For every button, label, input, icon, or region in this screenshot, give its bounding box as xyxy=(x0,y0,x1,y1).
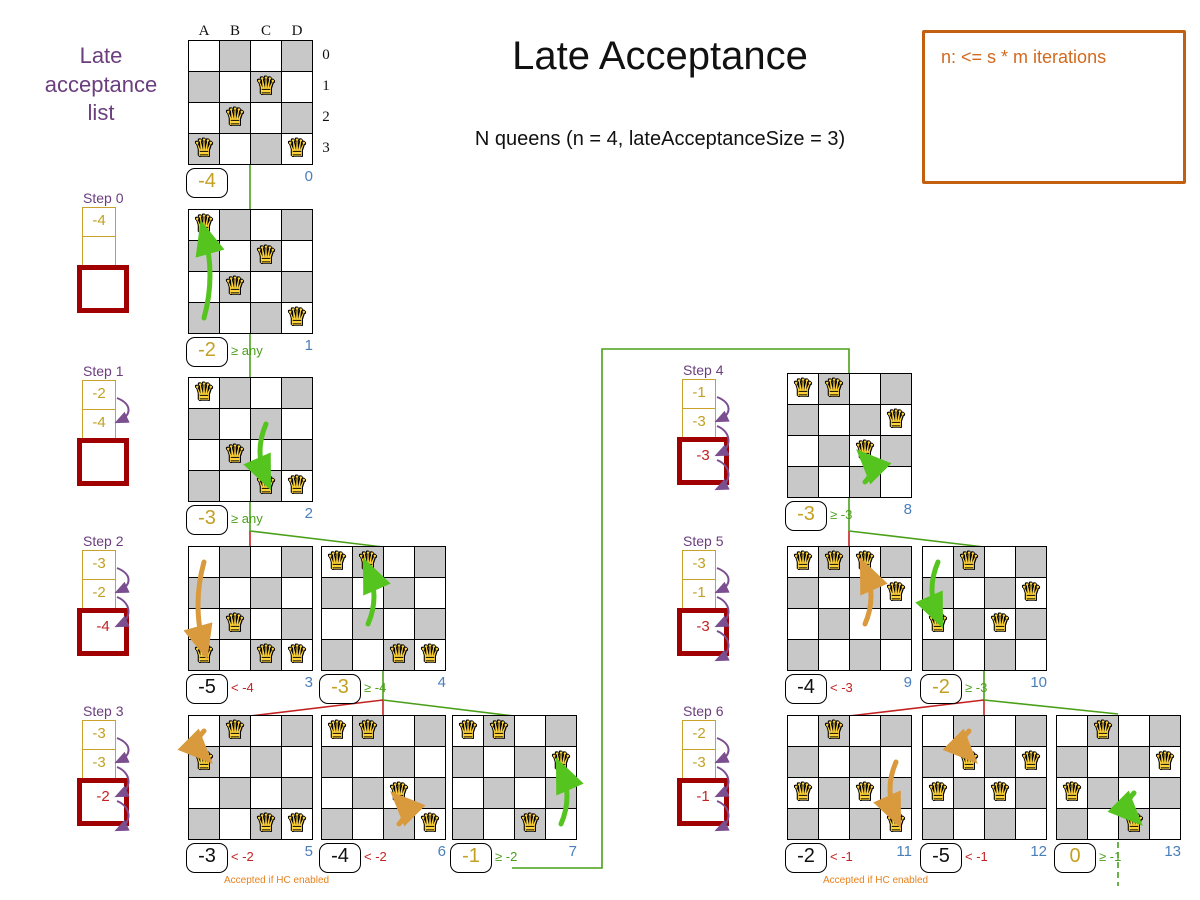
board-cell xyxy=(251,272,282,303)
board-cell xyxy=(220,41,251,72)
queen-icon: ♛ xyxy=(1016,579,1046,607)
board-10: ♛♛♛♛ xyxy=(922,546,1047,671)
board-cell xyxy=(189,809,220,840)
board-cell: ♛ xyxy=(819,374,850,405)
queen-icon: ♛ xyxy=(251,242,281,270)
board-cell xyxy=(282,778,313,809)
board-cell xyxy=(220,378,251,409)
queen-icon: ♛ xyxy=(453,717,483,745)
score-badge: -4 xyxy=(785,674,827,704)
board-index: 2 xyxy=(279,505,313,522)
board-cell xyxy=(923,747,954,778)
board-cell: ♛ xyxy=(384,640,415,671)
late-list-cell: -3 xyxy=(682,550,716,581)
board-cell: ♛ xyxy=(954,747,985,778)
board-cell xyxy=(322,609,353,640)
board-cell xyxy=(282,609,313,640)
board-cell xyxy=(954,609,985,640)
late-list-cell xyxy=(82,236,116,267)
queen-icon: ♛ xyxy=(1088,717,1118,745)
board-cell: ♛ xyxy=(1119,809,1150,840)
axis-col-label: B xyxy=(225,23,245,40)
board-cell xyxy=(1088,747,1119,778)
compare-label: < -3 xyxy=(830,680,853,695)
board-cell xyxy=(515,716,546,747)
queen-icon: ♛ xyxy=(220,441,250,469)
board-cell xyxy=(850,640,881,671)
board-cell: ♛ xyxy=(546,747,577,778)
board-12: ♛♛♛♛ xyxy=(922,715,1047,840)
board-index: 9 xyxy=(878,674,912,691)
queen-icon: ♛ xyxy=(1057,779,1087,807)
late-list-cell: -3 xyxy=(682,408,716,439)
board-cell: ♛ xyxy=(353,547,384,578)
board-cell xyxy=(819,640,850,671)
score-badge: -2 xyxy=(186,337,228,367)
board-cell xyxy=(850,374,881,405)
board-cell xyxy=(220,778,251,809)
board-cell: ♛ xyxy=(189,747,220,778)
board-cell xyxy=(484,809,515,840)
board-cell xyxy=(189,578,220,609)
board-cell xyxy=(788,467,819,498)
board-cell xyxy=(189,272,220,303)
board-cell xyxy=(1016,547,1047,578)
board-2: ♛♛♛♛ xyxy=(188,377,313,502)
step-label: Step 0 xyxy=(83,190,123,206)
board-cell xyxy=(415,547,446,578)
board-cell xyxy=(220,409,251,440)
queen-icon: ♛ xyxy=(189,379,219,407)
board-cell xyxy=(546,778,577,809)
board-cell xyxy=(282,440,313,471)
late-list-cell: -2 xyxy=(682,720,716,751)
board-6: ♛♛♛♛ xyxy=(321,715,446,840)
board-cell xyxy=(220,547,251,578)
board-cell xyxy=(819,405,850,436)
board-cell xyxy=(282,272,313,303)
board-cell xyxy=(220,72,251,103)
board-cell xyxy=(251,440,282,471)
score-badge: -4 xyxy=(319,843,361,873)
queen-icon: ♛ xyxy=(415,810,445,838)
board-cell xyxy=(546,809,577,840)
queen-icon: ♛ xyxy=(985,610,1015,638)
board-cell xyxy=(220,303,251,334)
queen-icon: ♛ xyxy=(251,641,281,669)
board-cell xyxy=(282,547,313,578)
board-cell: ♛ xyxy=(251,809,282,840)
late-score-box xyxy=(77,265,129,313)
board-cell xyxy=(850,609,881,640)
axis-row-label: 2 xyxy=(316,109,336,126)
late-acceptance-diagram: Late Acceptance N queens (n = 4, lateAcc… xyxy=(0,0,1200,900)
queen-icon: ♛ xyxy=(881,810,911,838)
score-badge: -2 xyxy=(785,843,827,873)
board-cell xyxy=(788,716,819,747)
board-cell xyxy=(189,547,220,578)
board-cell xyxy=(788,809,819,840)
late-score-box: -2 xyxy=(77,778,129,826)
board-cell xyxy=(415,778,446,809)
board-cell xyxy=(220,578,251,609)
board-cell xyxy=(453,778,484,809)
board-cell: ♛ xyxy=(881,578,912,609)
board-cell: ♛ xyxy=(282,471,313,502)
queen-icon: ♛ xyxy=(251,73,281,101)
board-cell xyxy=(353,747,384,778)
step-label: Step 5 xyxy=(683,533,723,549)
queen-icon: ♛ xyxy=(251,472,281,500)
compare-label: ≥ any xyxy=(231,511,263,526)
board-cell: ♛ xyxy=(415,640,446,671)
board-cell xyxy=(850,578,881,609)
board-cell xyxy=(1119,778,1150,809)
board-cell xyxy=(1016,609,1047,640)
board-index: 12 xyxy=(1013,843,1047,860)
queen-icon: ♛ xyxy=(850,548,880,576)
board-cell xyxy=(384,547,415,578)
queen-icon: ♛ xyxy=(1119,810,1149,838)
board-cell xyxy=(850,716,881,747)
queen-icon: ♛ xyxy=(1016,748,1046,776)
board-cell xyxy=(415,716,446,747)
board-cell: ♛ xyxy=(282,640,313,671)
board-cell: ♛ xyxy=(220,716,251,747)
board-cell xyxy=(819,578,850,609)
queen-icon: ♛ xyxy=(850,437,880,465)
board-cell xyxy=(251,210,282,241)
board-cell xyxy=(189,72,220,103)
queen-icon: ♛ xyxy=(189,135,219,163)
queen-icon: ♛ xyxy=(788,779,818,807)
board-cell: ♛ xyxy=(282,809,313,840)
board-cell: ♛ xyxy=(923,609,954,640)
board-cell xyxy=(282,747,313,778)
board-cell xyxy=(282,409,313,440)
queen-icon: ♛ xyxy=(954,548,984,576)
late-score-box xyxy=(77,438,129,486)
board-3: ♛♛♛♛ xyxy=(188,546,313,671)
board-cell xyxy=(1088,778,1119,809)
queen-icon: ♛ xyxy=(819,375,849,403)
diagram-subtitle: N queens (n = 4, lateAcceptanceSize = 3) xyxy=(410,128,910,151)
compare-label: ≥ -3 xyxy=(965,680,987,695)
board-cell xyxy=(881,609,912,640)
board-cell xyxy=(453,809,484,840)
board-cell xyxy=(788,405,819,436)
board-index: 13 xyxy=(1147,843,1181,860)
board-cell: ♛ xyxy=(189,210,220,241)
diagram-title: Late Acceptance xyxy=(410,34,910,79)
board-index: 6 xyxy=(412,843,446,860)
board-cell: ♛ xyxy=(923,778,954,809)
compare-label: < -4 xyxy=(231,680,254,695)
queen-icon: ♛ xyxy=(220,610,250,638)
queen-icon: ♛ xyxy=(788,548,818,576)
board-cell xyxy=(220,210,251,241)
board-cell xyxy=(251,578,282,609)
board-cell: ♛ xyxy=(515,809,546,840)
board-0: ♛♛♛♛ xyxy=(188,40,313,165)
board-cell xyxy=(1150,716,1181,747)
board-cell xyxy=(251,716,282,747)
board-7: ♛♛♛♛ xyxy=(452,715,577,840)
hc-note: Accepted if HC enabled xyxy=(823,875,928,886)
board-cell xyxy=(251,103,282,134)
board-cell xyxy=(251,378,282,409)
board-cell xyxy=(251,303,282,334)
hc-note: Accepted if HC enabled xyxy=(224,875,329,886)
axis-row-label: 3 xyxy=(316,140,336,157)
board-cell xyxy=(788,609,819,640)
board-cell: ♛ xyxy=(1016,747,1047,778)
board-cell xyxy=(384,809,415,840)
compare-label: ≥ -3 xyxy=(830,507,852,522)
board-cell xyxy=(220,747,251,778)
board-cell xyxy=(189,716,220,747)
board-cell xyxy=(484,747,515,778)
board-cell xyxy=(282,716,313,747)
compare-label: < -2 xyxy=(364,849,387,864)
late-list-cell: -3 xyxy=(82,749,116,780)
late-list-cell: -4 xyxy=(82,207,116,238)
board-cell xyxy=(322,640,353,671)
step-label: Step 6 xyxy=(683,703,723,719)
board-cell xyxy=(220,809,251,840)
board-9: ♛♛♛♛ xyxy=(787,546,912,671)
board-cell xyxy=(189,471,220,502)
queen-icon: ♛ xyxy=(384,779,414,807)
board-cell xyxy=(384,716,415,747)
board-cell: ♛ xyxy=(850,547,881,578)
board-cell xyxy=(819,609,850,640)
board-cell xyxy=(850,467,881,498)
queen-icon: ♛ xyxy=(189,641,219,669)
late-list-cell: -2 xyxy=(82,579,116,610)
score-badge: -3 xyxy=(186,505,228,535)
board-cell xyxy=(881,374,912,405)
board-cell: ♛ xyxy=(1150,747,1181,778)
board-cell: ♛ xyxy=(251,640,282,671)
board-cell xyxy=(282,578,313,609)
board-cell xyxy=(353,609,384,640)
queen-icon: ♛ xyxy=(353,717,383,745)
board-cell xyxy=(954,778,985,809)
score-badge: -3 xyxy=(785,501,827,531)
board-cell xyxy=(881,778,912,809)
board-cell xyxy=(189,41,220,72)
queen-icon: ♛ xyxy=(819,548,849,576)
board-cell xyxy=(985,578,1016,609)
board-cell xyxy=(251,41,282,72)
board-cell: ♛ xyxy=(1057,778,1088,809)
board-cell xyxy=(189,103,220,134)
board-cell xyxy=(819,467,850,498)
queen-icon: ♛ xyxy=(985,779,1015,807)
board-cell xyxy=(850,809,881,840)
board-cell xyxy=(850,747,881,778)
score-badge: -3 xyxy=(319,674,361,704)
board-cell xyxy=(1119,716,1150,747)
board-cell xyxy=(189,409,220,440)
compare-label: ≥ -4 xyxy=(364,680,386,695)
board-cell xyxy=(189,241,220,272)
board-cell xyxy=(384,747,415,778)
board-cell: ♛ xyxy=(788,547,819,578)
board-11: ♛♛♛♛ xyxy=(787,715,912,840)
board-cell xyxy=(189,778,220,809)
queen-icon: ♛ xyxy=(923,610,953,638)
board-cell: ♛ xyxy=(881,405,912,436)
board-cell xyxy=(819,809,850,840)
board-cell xyxy=(282,210,313,241)
board-cell xyxy=(515,747,546,778)
board-cell xyxy=(923,716,954,747)
board-cell: ♛ xyxy=(251,72,282,103)
board-cell xyxy=(220,241,251,272)
compare-label: < -1 xyxy=(830,849,853,864)
board-cell xyxy=(923,640,954,671)
board-index: 0 xyxy=(279,168,313,185)
board-cell xyxy=(189,440,220,471)
queen-icon: ♛ xyxy=(220,273,250,301)
late-score-box: -1 xyxy=(677,778,729,826)
board-cell: ♛ xyxy=(220,103,251,134)
board-cell xyxy=(1016,716,1047,747)
board-cell xyxy=(1016,778,1047,809)
board-cell xyxy=(484,778,515,809)
board-cell: ♛ xyxy=(189,378,220,409)
board-cell xyxy=(353,778,384,809)
board-cell: ♛ xyxy=(251,471,282,502)
board-index: 3 xyxy=(279,674,313,691)
board-cell xyxy=(881,747,912,778)
board-13: ♛♛♛♛ xyxy=(1056,715,1181,840)
board-cell xyxy=(322,578,353,609)
board-cell xyxy=(985,809,1016,840)
queen-icon: ♛ xyxy=(189,211,219,239)
score-badge: -5 xyxy=(186,674,228,704)
board-index: 4 xyxy=(412,674,446,691)
board-cell xyxy=(322,778,353,809)
board-index: 8 xyxy=(878,501,912,518)
board-cell xyxy=(819,747,850,778)
queen-icon: ♛ xyxy=(322,548,352,576)
score-badge: -4 xyxy=(186,168,228,198)
board-cell xyxy=(220,640,251,671)
board-cell: ♛ xyxy=(985,609,1016,640)
board-cell xyxy=(1057,747,1088,778)
queen-icon: ♛ xyxy=(923,779,953,807)
board-cell xyxy=(881,436,912,467)
board-cell: ♛ xyxy=(189,640,220,671)
late-list-cell: -3 xyxy=(682,749,716,780)
queen-icon: ♛ xyxy=(484,717,514,745)
queen-icon: ♛ xyxy=(546,748,576,776)
board-cell: ♛ xyxy=(484,716,515,747)
compare-label: ≥ -2 xyxy=(495,849,517,864)
board-cell: ♛ xyxy=(881,809,912,840)
board-cell: ♛ xyxy=(220,440,251,471)
board-cell xyxy=(415,609,446,640)
queen-icon: ♛ xyxy=(850,779,880,807)
board-cell xyxy=(546,716,577,747)
score-badge: -2 xyxy=(920,674,962,704)
compare-label: < -1 xyxy=(965,849,988,864)
board-cell xyxy=(251,409,282,440)
board-cell xyxy=(282,241,313,272)
board-cell xyxy=(1150,778,1181,809)
board-cell xyxy=(819,778,850,809)
board-cell xyxy=(353,578,384,609)
board-cell xyxy=(1088,809,1119,840)
board-cell: ♛ xyxy=(415,809,446,840)
board-index: 5 xyxy=(279,843,313,860)
board-cell: ♛ xyxy=(282,134,313,165)
note-box: n: <= s * m iterations xyxy=(922,30,1186,184)
board-cell xyxy=(251,778,282,809)
board-cell xyxy=(954,716,985,747)
board-cell xyxy=(282,72,313,103)
axis-row-label: 1 xyxy=(316,78,336,95)
board-5: ♛♛♛♛ xyxy=(188,715,313,840)
board-cell xyxy=(881,467,912,498)
board-cell: ♛ xyxy=(220,272,251,303)
note-box-text: n: <= s * m iterations xyxy=(925,33,1183,82)
board-cell xyxy=(282,378,313,409)
queen-icon: ♛ xyxy=(788,375,818,403)
board-cell xyxy=(353,640,384,671)
board-cell xyxy=(322,747,353,778)
board-cell xyxy=(954,578,985,609)
axis-row-label: 0 xyxy=(316,47,336,64)
board-cell xyxy=(788,640,819,671)
board-cell: ♛ xyxy=(850,436,881,467)
queen-icon: ♛ xyxy=(954,748,984,776)
board-cell xyxy=(322,809,353,840)
board-cell xyxy=(788,436,819,467)
board-cell xyxy=(881,547,912,578)
late-list-cell: -1 xyxy=(682,579,716,610)
queen-icon: ♛ xyxy=(251,810,281,838)
board-cell xyxy=(881,640,912,671)
score-badge: 0 xyxy=(1054,843,1096,873)
board-cell: ♛ xyxy=(954,547,985,578)
board-1: ♛♛♛♛ xyxy=(188,209,313,334)
queen-icon: ♛ xyxy=(282,135,312,163)
board-cell xyxy=(282,103,313,134)
board-cell xyxy=(788,747,819,778)
queen-icon: ♛ xyxy=(353,548,383,576)
board-cell: ♛ xyxy=(819,716,850,747)
queen-icon: ♛ xyxy=(220,717,250,745)
step-label: Step 4 xyxy=(683,362,723,378)
board-cell xyxy=(1016,809,1047,840)
board-index: 1 xyxy=(279,337,313,354)
board-cell: ♛ xyxy=(322,716,353,747)
board-cell xyxy=(954,640,985,671)
compare-label: ≥ any xyxy=(231,343,263,358)
step-label: Step 3 xyxy=(83,703,123,719)
board-cell xyxy=(384,578,415,609)
board-cell: ♛ xyxy=(189,134,220,165)
board-cell: ♛ xyxy=(384,778,415,809)
board-cell xyxy=(1016,640,1047,671)
board-cell xyxy=(220,134,251,165)
board-cell xyxy=(251,747,282,778)
board-cell: ♛ xyxy=(850,778,881,809)
